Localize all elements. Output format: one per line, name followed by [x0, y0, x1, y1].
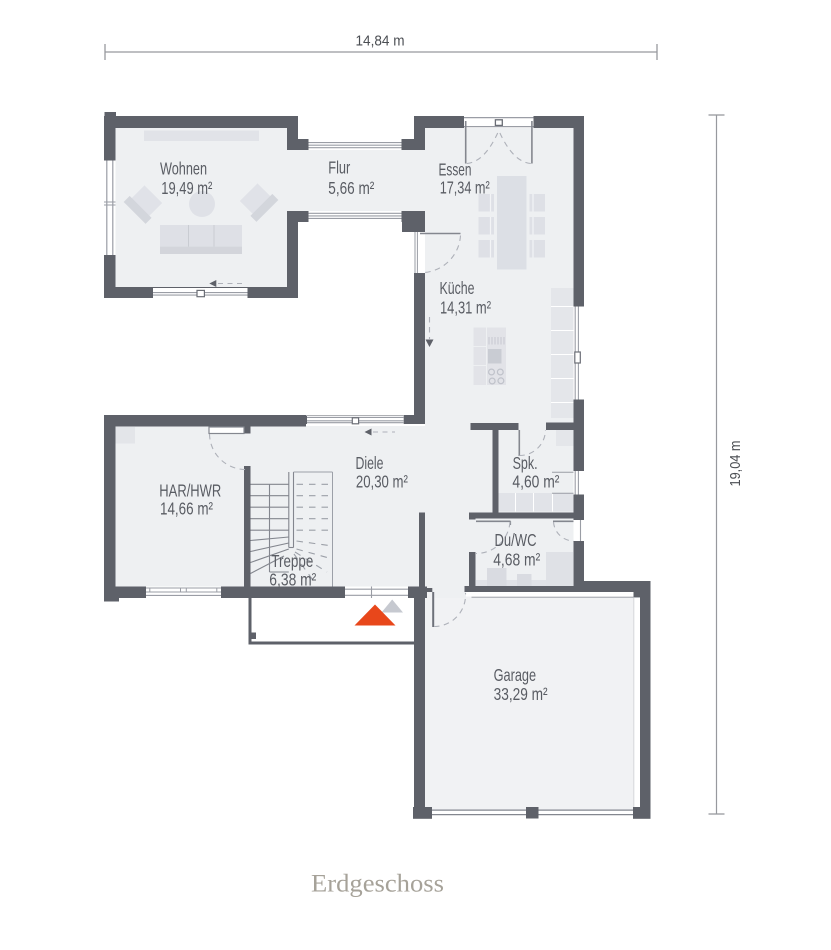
svg-text:Erdgeschoss: Erdgeschoss	[311, 869, 444, 898]
svg-text:20,30 m²: 20,30 m²	[356, 472, 408, 492]
svg-text:Wohnen: Wohnen	[160, 158, 207, 178]
svg-text:14,84 m: 14,84 m	[356, 33, 405, 50]
svg-text:Treppe: Treppe	[271, 551, 313, 571]
svg-text:19,04 m: 19,04 m	[727, 441, 744, 487]
svg-text:6,38 m²: 6,38 m²	[269, 570, 316, 590]
svg-text:Diele: Diele	[356, 453, 384, 473]
svg-text:Du/WC: Du/WC	[495, 530, 537, 550]
svg-text:14,66 m²: 14,66 m²	[160, 499, 213, 519]
svg-text:17,34 m²: 17,34 m²	[440, 177, 490, 197]
svg-text:Flur: Flur	[328, 158, 350, 178]
svg-text:Garage: Garage	[494, 665, 536, 685]
svg-text:Küche: Küche	[440, 278, 475, 298]
svg-text:5,66 m²: 5,66 m²	[328, 178, 374, 198]
svg-text:HAR/HWR: HAR/HWR	[159, 481, 221, 501]
svg-text:14,31 m²: 14,31 m²	[440, 298, 491, 318]
svg-text:Spk.: Spk.	[513, 453, 538, 473]
svg-text:4,68 m²: 4,68 m²	[493, 550, 540, 570]
svg-text:4,60 m²: 4,60 m²	[512, 472, 559, 492]
svg-text:19,49 m²: 19,49 m²	[161, 178, 212, 198]
svg-text:33,29 m²: 33,29 m²	[494, 684, 548, 704]
